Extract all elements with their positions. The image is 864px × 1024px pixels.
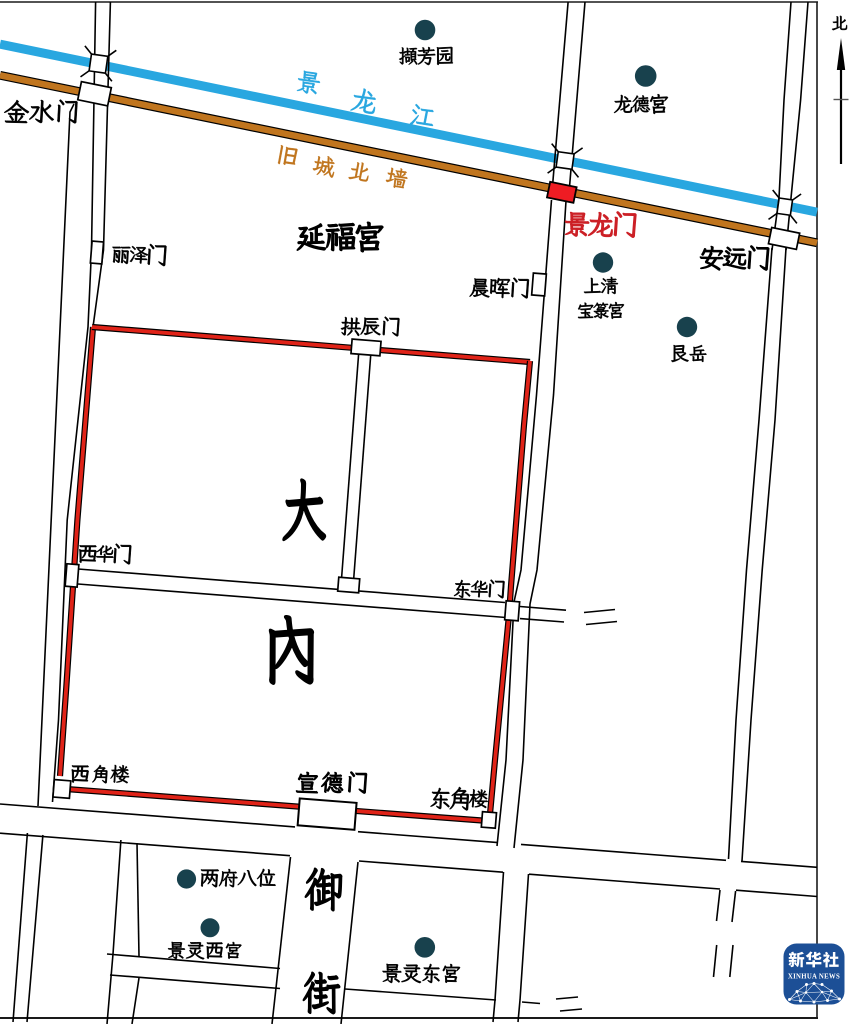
svg-text:XINHUA NEWS: XINHUA NEWS: [788, 973, 840, 980]
